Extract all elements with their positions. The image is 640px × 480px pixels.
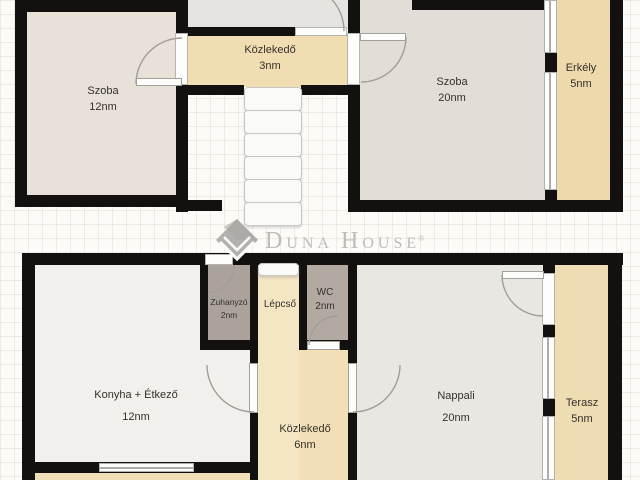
door-arc [502,275,543,316]
label-terasz: Terasz 5nm [566,395,598,427]
floor-plan: Szoba 12nm Közlekedő 3nm Szoba 20nm Erké… [0,0,640,480]
label-lepcso: Lépcső [264,298,296,312]
label-kozlekedo-3: Közlekedő 3nm [244,42,295,74]
door-arc [207,365,254,412]
duna-house-logo: DUNA HOUSE® [216,218,426,262]
door-arc [309,316,338,345]
label-wc: WC 2nm [315,286,334,314]
duna-house-wordmark: DUNA HOUSE® [265,228,426,255]
duna-house-diamond-icon [216,218,259,262]
door-arc [361,37,406,82]
label-zuhanyzo: Zuhanyzó 2nm [210,296,247,322]
label-erkely: Erkély 5nm [566,60,597,92]
label-nappali: Nappali 20nm [437,385,474,429]
label-szoba-20: Szoba 20nm [436,74,467,106]
door-arc [297,0,344,31]
door-arc [353,365,400,412]
door-arc [136,38,182,84]
door-arc [208,266,234,292]
registered-mark: ® [418,234,424,243]
label-kozlekedo-6: Közlekedő 6nm [279,421,330,453]
label-szoba-12: Szoba 12nm [87,83,118,115]
label-konyha: Konyha + Étkező 12nm [94,384,177,428]
